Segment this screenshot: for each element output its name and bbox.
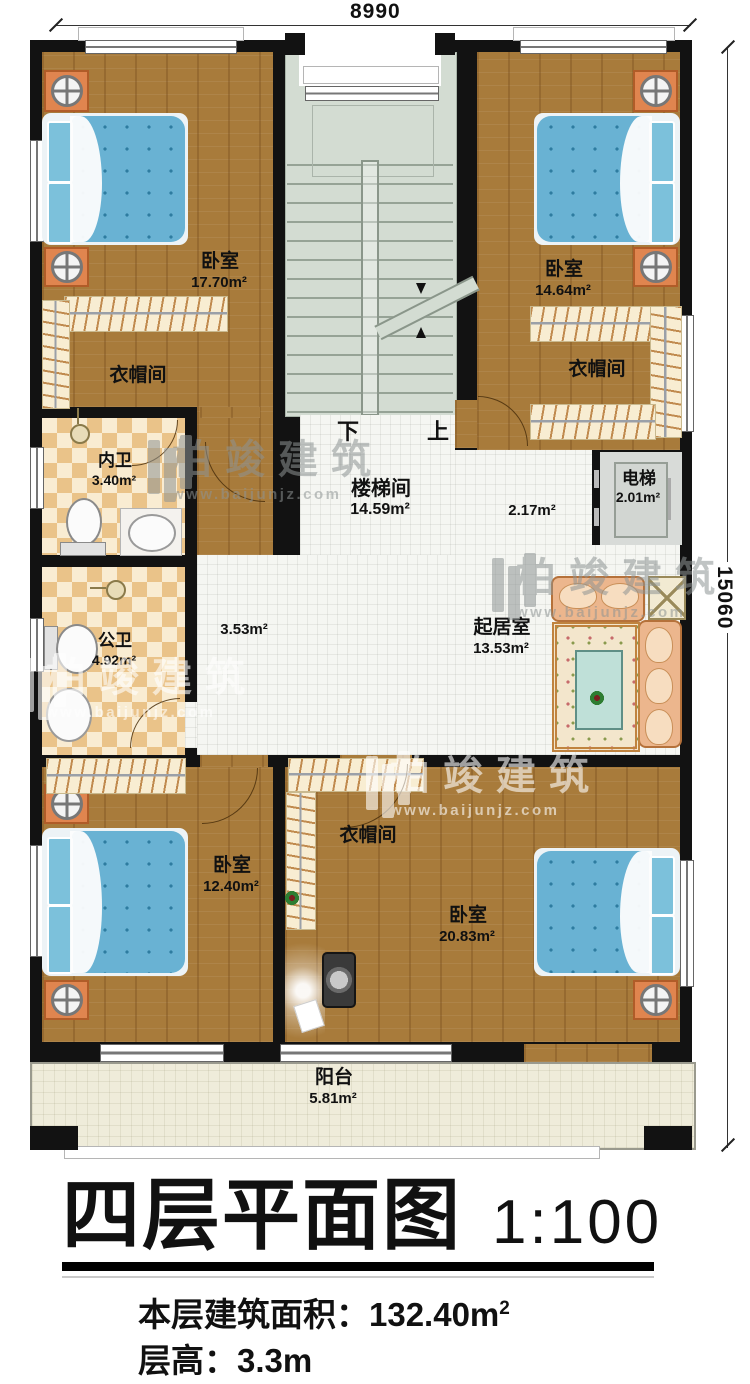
title-underline-shadow <box>62 1276 654 1278</box>
bed-bottom-left <box>42 828 188 976</box>
elevator-rail-mark <box>668 478 671 520</box>
bath-public-area: 4.92m² <box>92 653 136 668</box>
door-sill-bath-public <box>185 702 197 748</box>
bedroom-tl-area: 17.70m² <box>191 275 247 292</box>
lamp-icon <box>640 984 672 1016</box>
top-dimension-line <box>55 25 691 26</box>
computer-monitor-icon <box>322 952 356 1008</box>
stair-center-rail <box>361 160 379 416</box>
bed-pillow <box>649 182 675 244</box>
nightstand <box>633 247 678 287</box>
cloak-b-label: 衣帽间 <box>339 826 396 847</box>
plan-title: 四层平面图 <box>62 1176 462 1254</box>
hall-floor <box>197 555 455 755</box>
building-area-label: 本层建筑面积： <box>138 1296 369 1333</box>
notch-post-right <box>435 33 455 55</box>
bedroom-tr-label: 卧室 <box>545 260 583 281</box>
window-sill-tr <box>513 27 675 41</box>
sofa-two-seat <box>551 576 645 622</box>
lamp-icon <box>640 75 672 107</box>
living-label: 起居室 <box>473 618 530 639</box>
bed-bottom-right <box>534 848 680 976</box>
bedroom-bl-area: 12.40m² <box>203 879 259 896</box>
shower-head-icon <box>106 580 126 600</box>
top-dimension-label: 8990 <box>345 0 406 24</box>
sink <box>128 514 176 552</box>
window-sill-tl <box>78 27 244 41</box>
nightstand <box>44 980 89 1020</box>
bed-pillow <box>649 915 675 975</box>
notch-post-left <box>285 33 305 55</box>
sofa-cushion <box>559 583 597 609</box>
plant-icon <box>284 890 300 906</box>
cloak-rack <box>530 404 656 440</box>
sofa-cushion <box>645 668 673 704</box>
lamp-icon <box>51 251 83 283</box>
plan-scale: 1:100 <box>492 1192 662 1254</box>
living-area: 13.53m² <box>473 641 529 658</box>
lamp-icon <box>51 984 83 1016</box>
bed-pillow <box>649 856 675 916</box>
stairwell-label: 楼梯间 <box>351 478 411 500</box>
door-sill-bl <box>200 755 268 767</box>
bed-pillow <box>649 121 675 183</box>
stair-down-label: 下 <box>337 420 359 444</box>
elevator-door-mark2 <box>594 508 599 526</box>
balcony-floor <box>30 1062 696 1150</box>
hall-left-area: 3.53m² <box>220 622 268 639</box>
cloak-rack <box>42 300 70 409</box>
balcony-door-right <box>524 1044 652 1062</box>
right-dimension-tick-top <box>721 40 735 54</box>
stairwell-area: 14.59m² <box>350 501 410 519</box>
balcony-window-left <box>100 1044 224 1062</box>
nightstand <box>44 70 89 112</box>
balcony-rail-bottom <box>64 1146 600 1159</box>
cloak-rack <box>46 758 186 794</box>
right-dimension-tick-bottom <box>721 1138 735 1152</box>
bed-top-left <box>42 113 188 245</box>
window-right-bedroom-br <box>680 860 694 987</box>
shower-stem <box>90 587 106 589</box>
elevator-door-mark <box>594 470 599 488</box>
shower-head-icon <box>70 424 90 444</box>
bath-public-label: 公卫 <box>98 632 132 651</box>
hall-right-floor <box>455 450 592 545</box>
stair-wall-lower-stub <box>283 415 300 557</box>
cloak-rack <box>530 306 656 342</box>
flower-icon <box>589 690 605 706</box>
window-left-bath-inner <box>30 447 44 509</box>
toilet <box>66 498 102 546</box>
elevator-label: 电梯 <box>622 470 656 489</box>
lamp-icon <box>640 251 672 283</box>
balcony-corner-left <box>30 1126 78 1150</box>
bedroom-tl-label: 卧室 <box>201 252 239 273</box>
cloak-tr-label: 衣帽间 <box>568 360 625 381</box>
sofa-three-seat <box>638 620 682 748</box>
door-sill-cloak-tl <box>200 407 260 418</box>
building-area-sup: 2 <box>499 1298 510 1319</box>
bedroom-br-label: 卧室 <box>449 906 487 927</box>
sofa-cushion <box>645 627 673 663</box>
sink <box>46 688 92 742</box>
corner-table <box>648 576 686 620</box>
window-top-tr <box>520 40 667 54</box>
stair-window <box>305 86 439 101</box>
window-top-tl <box>85 40 237 54</box>
nightstand <box>633 70 678 112</box>
sofa-cushion <box>601 583 639 609</box>
door-sill-bedroom-tr <box>455 400 477 448</box>
bed-top-right <box>534 113 680 245</box>
title-row: 四层平面图 1:100 <box>62 1176 662 1254</box>
window-left-bath-public <box>30 618 44 672</box>
stair-up-label: 上 <box>427 420 449 444</box>
lamp-icon <box>51 75 83 107</box>
title-underline <box>62 1262 654 1271</box>
nightstand <box>633 980 678 1020</box>
stair-arrow-down-icon <box>416 283 426 294</box>
balcony-area: 5.81m² <box>309 1091 357 1108</box>
cloak-tl-label: 衣帽间 <box>109 366 166 387</box>
window-right-bedroom-tr <box>680 315 694 432</box>
floor-height-line: 层高：3.3m <box>138 1334 312 1382</box>
bath-inner-area: 3.40m² <box>92 473 136 488</box>
shower-stem <box>77 408 79 424</box>
bedroom-tr-area: 14.64m² <box>535 283 591 300</box>
balcony-door-center <box>280 1044 452 1062</box>
floor-plan-page: 8990 15060 <box>0 0 750 1384</box>
stair-arrow-up-icon <box>416 327 426 338</box>
balcony-corner-right <box>644 1126 692 1150</box>
right-dimension-label: 15060 <box>712 562 736 633</box>
bath-inner-label: 内卫 <box>98 452 132 471</box>
stair-window-sill <box>303 66 439 84</box>
building-area-line: 本层建筑面积：132.40m2 <box>138 1288 510 1336</box>
building-area-value: 132.40m <box>369 1296 499 1333</box>
cloak-rack <box>64 296 228 332</box>
hall-right-area: 2.17m² <box>508 503 556 520</box>
balcony-label: 阳台 <box>315 1068 353 1089</box>
cloak-rack <box>286 792 316 930</box>
bedroom-br-area: 20.83m² <box>439 929 495 946</box>
elevator-area: 2.01m² <box>616 490 660 505</box>
bedroom-bl-label: 卧室 <box>213 856 251 877</box>
toilet-tank <box>60 542 106 556</box>
nightstand <box>44 247 89 287</box>
sofa-cushion <box>645 709 673 745</box>
